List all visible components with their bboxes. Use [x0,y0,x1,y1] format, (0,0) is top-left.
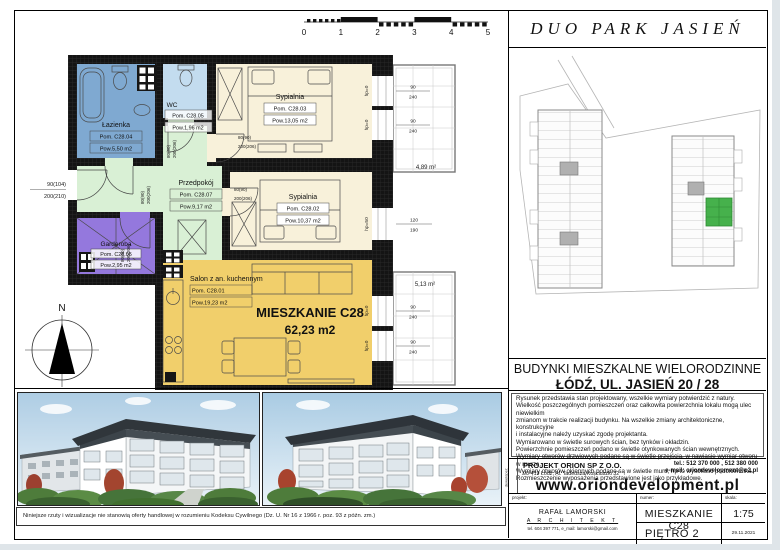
room-label-sypialnia2: Sypialnia [289,194,318,201]
svg-text:1: 1 [339,28,344,37]
svg-text:Pow.9,17 m2: Pow.9,17 m2 [180,205,212,211]
svg-text:5: 5 [486,28,491,37]
developer-website: www.oriondevelopment.pl [509,477,766,495]
note-line: Powierzchnie pomieszczeń podano w świetl… [516,446,759,453]
unit-number: MIESZKANIE C28 [637,504,722,523]
balcony-top [393,65,455,172]
scale-bar-ticks: 0 1 2 3 4 5 [302,28,491,37]
svg-text:240: 240 [409,95,417,101]
building-a-footprint [530,110,602,288]
scale-bar: 0 1 2 3 4 5 [296,12,496,38]
architect-contact: tel. 604 397 771, e_mail: lamorski@gmail… [509,526,636,531]
site-plan [509,50,766,359]
svg-text:80(90): 80(90) [234,187,248,192]
photos-disclaimer: Niniejsze rzuty i wizualizacje nie stano… [16,507,506,526]
svg-text:Pow.1,96 m2: Pow.1,96 m2 [172,126,203,132]
notes-block: Rysunek przedstawia stan projektowany, w… [509,391,766,459]
svg-text:90: 90 [410,340,416,346]
developer-phone: tel.: 512 370 000 , 512 380 000 [665,461,758,468]
address-line1: BUDYNKI MIESZKALNE WIELORODZINNE [509,362,766,376]
svg-text:200(210): 200(210) [44,194,66,200]
svg-text:Pow.5,50 m2: Pow.5,50 m2 [100,147,132,153]
building-b-footprint [672,136,742,266]
apartment-name: MIESZKANIE C28 [256,305,364,320]
svg-text:90: 90 [410,85,416,91]
projekt-label: projekt: [509,494,637,504]
svg-text:80(90): 80(90) [140,190,145,204]
room-label-sypialnia3: Sypialnia [276,94,305,101]
svg-text:Pom. C28.03: Pom. C28.03 [274,107,307,113]
note-line: Wielkość poszczególnych pomieszczeń oraz… [516,402,759,417]
address-block: BUDYNKI MIESZKALNE WIELORODZINNE ŁÓDŹ, U… [509,359,766,391]
svg-text:80(90): 80(90) [166,144,171,158]
note-line: Rysunek przedstawia stan projektowany, w… [516,395,759,402]
svg-text:90: 90 [410,119,416,125]
drawing-scale: 1:75 [722,504,765,523]
svg-text:200(206): 200(206) [238,144,257,149]
compass-rose: N [18,298,108,390]
svg-text:Pom. C28.04: Pom. C28.04 [100,135,133,141]
svg-text:Pow.10,37 m2: Pow.10,37 m2 [285,219,320,225]
svg-text:2: 2 [375,28,380,37]
project-title: DUO PARK JASIEŃ [509,10,766,48]
room-label-przedpokoj: Przedpokój [178,180,213,187]
skala-label: skala: [722,494,765,504]
svg-text:Pow.2,95 m2: Pow.2,95 m2 [100,263,131,269]
svg-text:200(206): 200(206) [234,196,253,201]
developer-block: deweloper: PROJEKT ORION SP Z O.O. 90-41… [509,459,766,494]
developer-company: PROJEKT ORION SP Z O.O. [523,461,622,470]
svg-text:Pow.13,05 m2: Pow.13,05 m2 [272,119,307,125]
highlighted-apartment [706,198,732,226]
room-label-salon: Salon z an. kuchennym [190,276,263,283]
balcony-bottom-area: 5,13 m² [415,282,435,288]
svg-text:0: 0 [302,28,307,37]
svg-text:4: 4 [449,28,454,37]
building-render-photo-1 [17,392,260,506]
svg-text:Pom. C28.02: Pom. C28.02 [287,207,320,213]
floor-number: PIĘTRO 2 [637,523,722,544]
photos-disclaimer-text: Niniejsze rzuty i wizualizacje nie stano… [23,513,375,519]
svg-text:hp=0: hp=0 [364,119,370,130]
svg-text:80(90): 80(90) [120,248,125,262]
svg-text:200(206): 200(206) [146,185,151,204]
svg-text:80(90): 80(90) [238,135,252,140]
svg-text:120: 120 [410,218,418,224]
developer-side-label: deweloper: [508,459,518,493]
address-line2: ŁÓDŹ, UL. JASIEŃ 20 / 28 [509,377,766,392]
room-label-lazienka: Łazienka [102,122,130,129]
svg-text:3: 3 [412,28,417,37]
svg-text:hp=0: hp=0 [364,305,370,316]
building-render-photo-2 [262,392,502,506]
svg-text:90: 90 [410,305,416,311]
balcony-bottom [393,272,455,385]
svg-text:hp=0: hp=0 [364,85,370,96]
compass-north-label: N [58,303,65,314]
svg-text:hp=50: hp=50 [364,217,370,231]
svg-text:240: 240 [409,129,417,135]
svg-text:Pom. C28.07: Pom. C28.07 [180,193,213,199]
windows [372,76,393,361]
svg-text:Pom. C28.05: Pom. C28.05 [172,114,203,120]
balcony-top-area: 4,89 m² [416,165,436,171]
architect-cell: RAFAŁ LAMORSKI A R C H I T E K T tel. 60… [509,504,637,544]
site-plan-drawing [510,50,766,354]
right-panel: DUO PARK JASIEŃ [508,10,766,538]
room-label-wc: WC [167,102,178,109]
svg-text:90(104): 90(104) [47,182,66,188]
apartment-area: 62,23 m2 [285,323,336,337]
plan-sheet: 0 1 2 3 4 5 4,89 m² 5,13 m² [0,0,772,544]
svg-text:Pom. C28.01: Pom. C28.01 [192,289,225,295]
architect-name: RAFAŁ LAMORSKI [509,509,636,516]
svg-text:240: 240 [409,315,417,321]
note-line: i instalacyjne należy uzyskać zgodę proj… [516,431,759,438]
photos-divider [14,388,508,389]
svg-text:240: 240 [409,350,417,356]
svg-text:200(206): 200(206) [172,139,177,158]
compass-needle [49,323,75,374]
svg-text:hp=0: hp=0 [364,340,370,351]
svg-text:190: 190 [410,228,418,234]
drawing-date: 29.11.2021 [722,523,765,544]
note-line: Wymiarowano w świetle surowych ścian, be… [516,439,759,446]
svg-text:Pow.19,23 m2: Pow.19,23 m2 [192,301,227,307]
note-line: zmianom w trakcie realizacji budynku. Na… [516,417,759,432]
developer-email: e-mail: oriondevelopment@o2.pl [665,468,758,475]
architect-title: A R C H I T E K T [509,518,636,524]
title-block-table: projekt: numer: skala: RAFAŁ LAMORSKI A … [509,494,766,544]
svg-text:200(206): 200(206) [126,243,131,262]
numer-label: numer: [637,494,722,504]
